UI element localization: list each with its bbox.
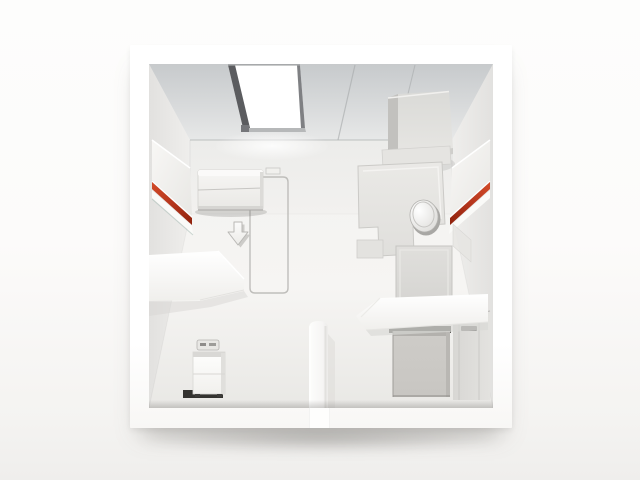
fold-out-hinge xyxy=(266,168,280,174)
skylight-bracket xyxy=(241,125,249,132)
room-frame xyxy=(130,45,512,428)
tray-detail xyxy=(209,343,216,346)
center-partition-shadow xyxy=(328,334,335,408)
room-interior xyxy=(149,64,493,408)
side-step-box xyxy=(357,240,383,258)
storage-box-side xyxy=(446,331,450,397)
floor-front-edge xyxy=(149,400,493,408)
room-scene xyxy=(149,64,493,408)
skylight-glow xyxy=(214,131,330,161)
skylight-sill xyxy=(242,128,306,132)
skylight-frame-top xyxy=(228,64,300,66)
ceiling-unit-side xyxy=(388,94,398,156)
cabinet-foot xyxy=(195,394,200,397)
storage-box xyxy=(393,331,450,397)
bed-bottom-edge xyxy=(198,206,263,210)
cabinet-top-band xyxy=(193,352,225,357)
center-partition-extension xyxy=(309,408,330,428)
drawer-cabinet xyxy=(193,352,225,394)
bed-side-shade xyxy=(260,172,263,209)
tray-detail xyxy=(200,343,206,346)
cabinet-foot xyxy=(217,394,222,397)
bed-top-face xyxy=(198,170,263,176)
render-canvas xyxy=(0,0,640,480)
